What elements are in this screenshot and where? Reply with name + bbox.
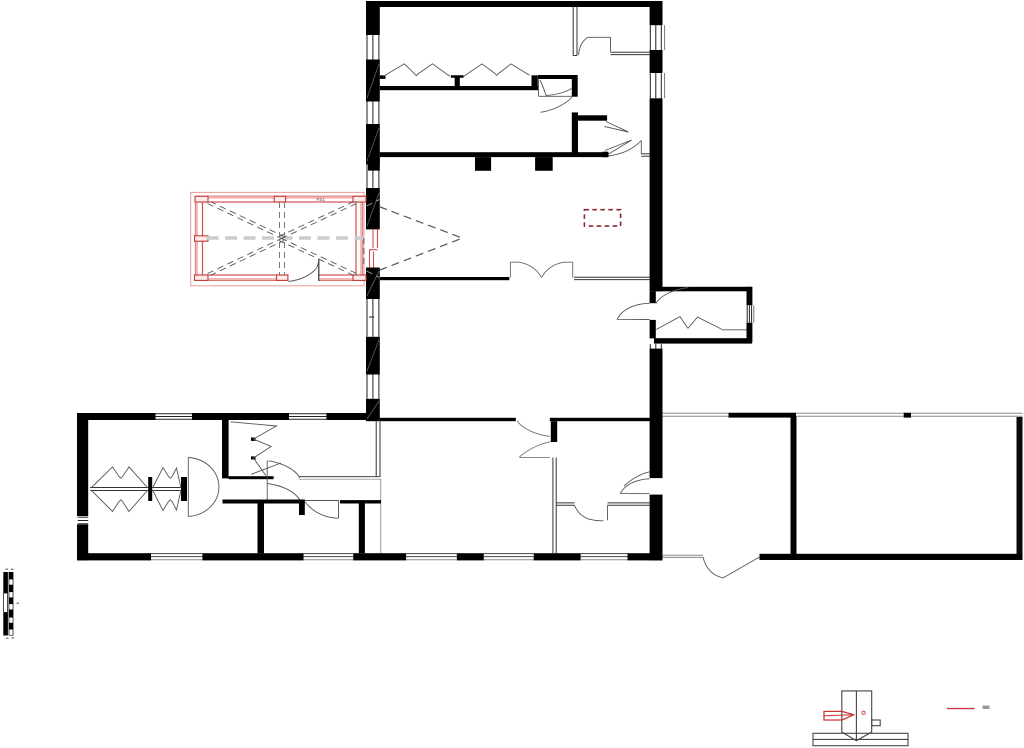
svg-text:FS1: FS1 xyxy=(317,197,326,202)
